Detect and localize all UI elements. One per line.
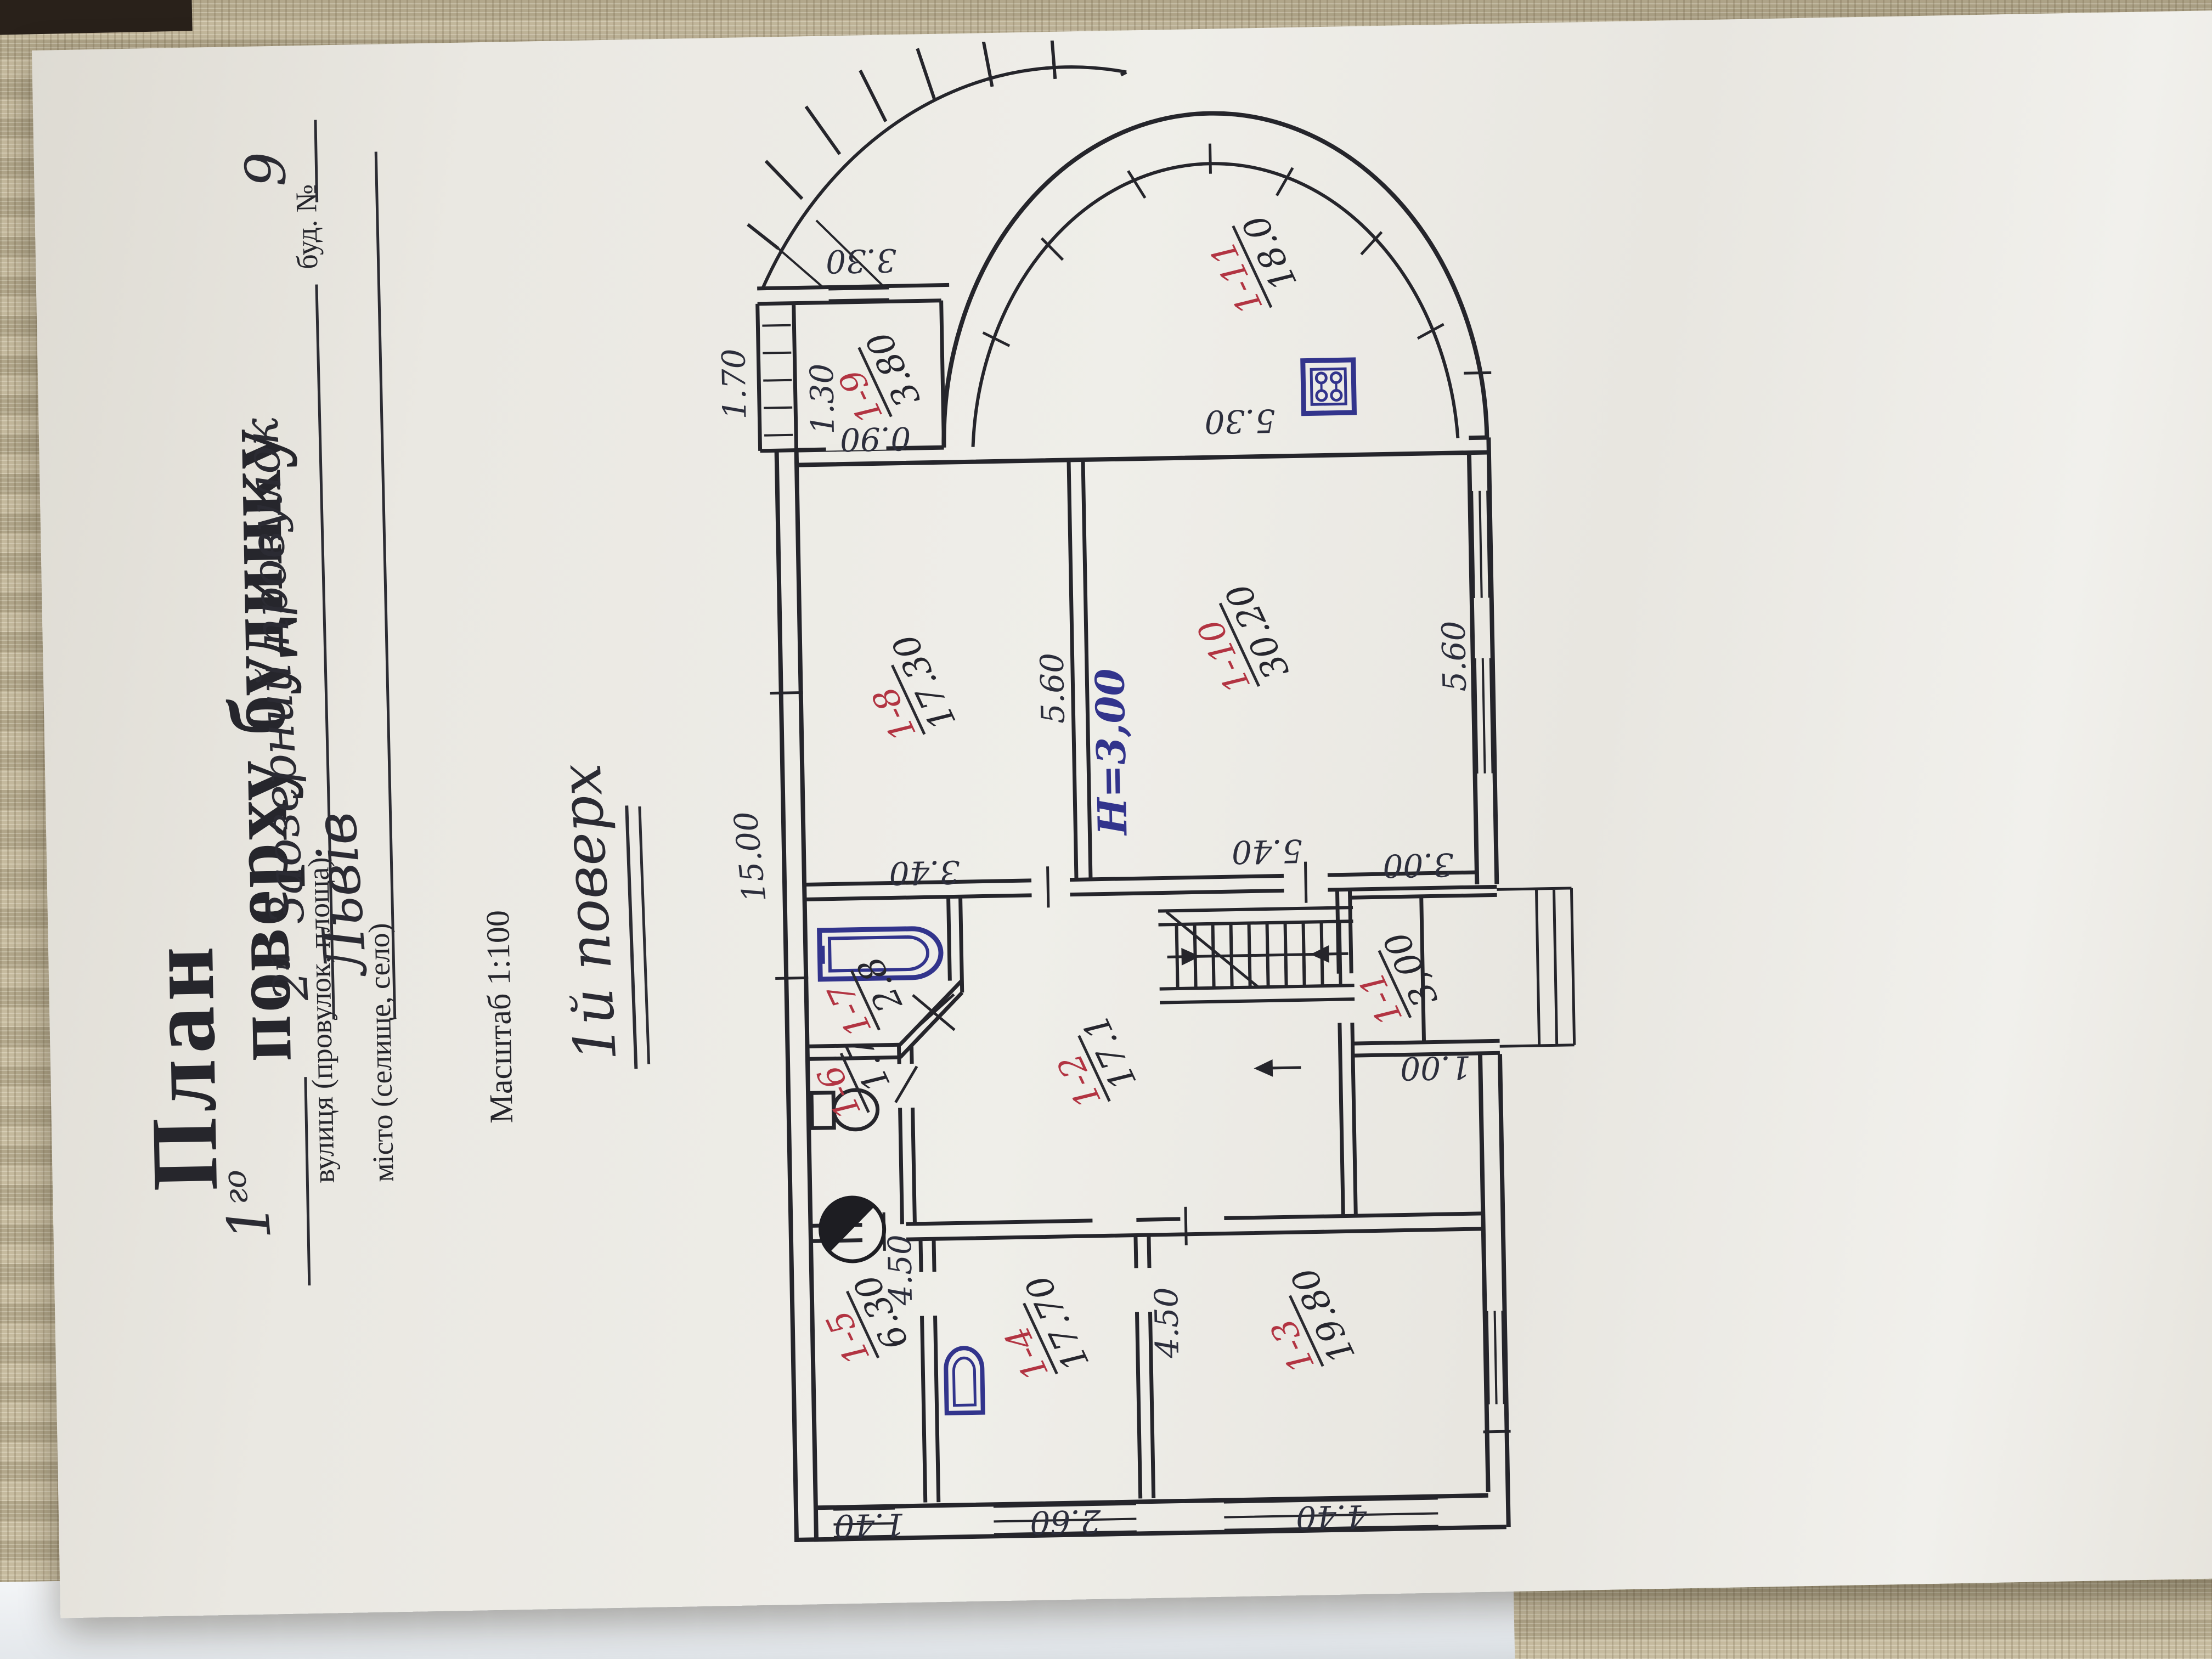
dim-r9-side: 3.30 (826, 241, 897, 280)
dim-r10-width: 5.60 (1435, 620, 1473, 692)
room-label-1-3: 1-3 19.80 (1247, 1261, 1364, 1387)
dim-corridor: 3.40 (889, 853, 960, 891)
table-edge (0, 0, 193, 35)
room-label-1-4: 1-4 17.70 (981, 1268, 1098, 1394)
boiler-icon (820, 1197, 885, 1262)
floor-number-handwritten: 1го (211, 1166, 284, 1243)
stair-direction-arrows (1181, 945, 1331, 1076)
room-label-1-2: 1-2 17.1 (1039, 1008, 1148, 1118)
dim-r4-window: 2.60 (1030, 1503, 1102, 1541)
paper-sheet: План 1го поверху будинку вулиця (провуло… (32, 9, 2212, 1618)
scale-note: Масштаб 1:100 (479, 910, 521, 1124)
dim-porch: 1.70 (715, 348, 753, 420)
building-value-handwritten: 9 (233, 151, 298, 188)
stove-icon (1303, 360, 1355, 414)
city-value-handwritten: Львів (302, 810, 380, 978)
dim-r1-length: 3.00 (1383, 846, 1454, 884)
floor-note-handwritten: 1й поверх (547, 762, 630, 1063)
windows-bottom-wall (1472, 491, 1504, 1404)
dim-overall: 15.00 (727, 810, 774, 904)
room-label-1-8: 1-8 17.30 (848, 628, 964, 753)
building-label: буд. № (289, 184, 325, 269)
bay-window-1-11 (938, 109, 1487, 448)
dim-r3-width: 4.40 (1296, 1498, 1368, 1536)
room-label-1-11: 1-11 18.0 (1198, 208, 1310, 324)
floor-note-underline-2 (638, 806, 650, 1064)
room-label-1-1: 1-1 3,00 (1340, 925, 1448, 1034)
photo-scene: План 1го поверху будинку вулиця (провуло… (0, 0, 2212, 1659)
dim-r9-width: 1.30 (803, 363, 842, 435)
ceiling-height-note: Н=3,00 (1086, 668, 1136, 837)
dim-r8-width: 5.60 (1033, 652, 1071, 724)
dim-r10-depth: 5.40 (1231, 832, 1302, 871)
dim-r1-width: 1.00 (1400, 1048, 1471, 1087)
city-blank-line (375, 151, 396, 1018)
floor-plan: 1-1 3,00 1-2 17.1 1-3 19.80 (687, 30, 1680, 1583)
dim-bay-chord: 5.30 (1204, 402, 1276, 441)
document: План 1го поверху будинку вулиця (провуло… (56, 19, 2212, 1595)
dim-r3-depth: 4.50 (1148, 1287, 1186, 1359)
room-label-1-10: 1-10 30.20 (1181, 577, 1298, 703)
small-tub-icon (946, 1348, 983, 1413)
dim-r5-depth: 4.50 (881, 1234, 919, 1306)
dim-r5-width: 1.40 (834, 1506, 905, 1544)
dim-r9-door: 0.90 (839, 420, 911, 458)
entrance-porch-steps (1497, 888, 1574, 1046)
